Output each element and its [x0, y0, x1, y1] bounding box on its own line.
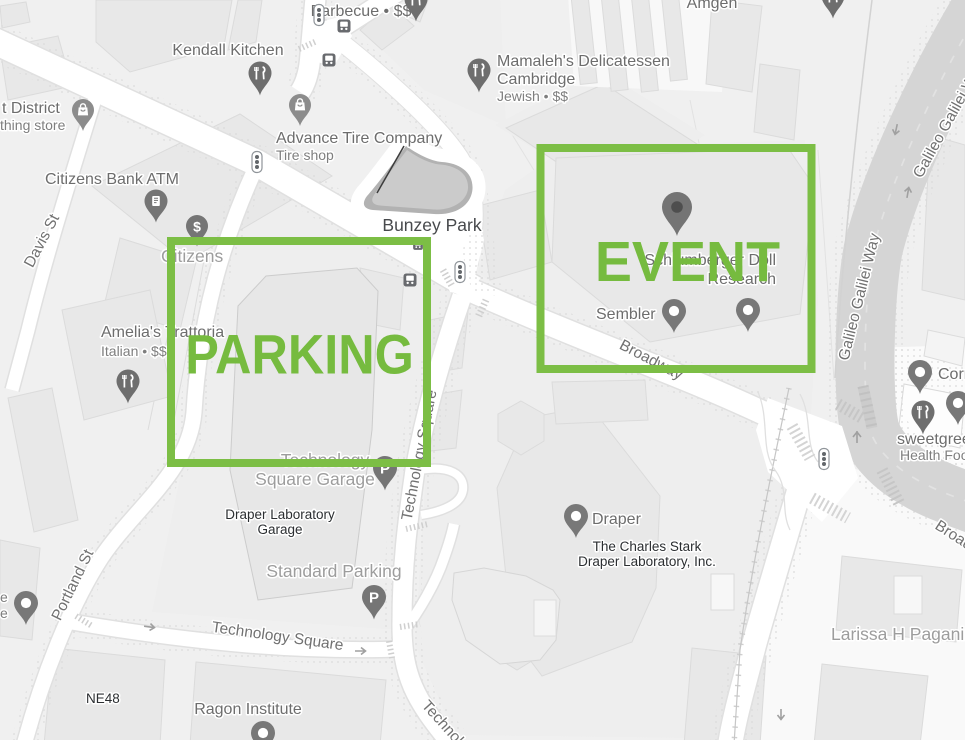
svg-text:Kendall Kitchen: Kendall Kitchen [172, 42, 283, 59]
svg-text:t District: t District [2, 100, 60, 117]
svg-text:NE48: NE48 [86, 691, 120, 706]
svg-text:The Charles Stark: The Charles Stark [593, 539, 702, 554]
svg-text:Amgen: Amgen [687, 0, 738, 12]
svg-text:Sembler: Sembler [596, 306, 656, 323]
svg-text:thing store: thing store [0, 117, 66, 133]
svg-text:EVENT: EVENT [595, 229, 780, 293]
svg-text:Tire shop: Tire shop [276, 147, 334, 163]
svg-text:Corner: Corner [938, 366, 965, 383]
svg-text:e: e [0, 589, 8, 605]
svg-text:Cambridge: Cambridge [497, 71, 575, 88]
svg-text:Barbecue • $$: Barbecue • $$ [311, 3, 412, 20]
svg-text:e: e [0, 605, 8, 621]
svg-text:Jewish • $$: Jewish • $$ [497, 88, 568, 104]
svg-text:Health Food: Health Food [900, 447, 965, 463]
svg-text:Square Garage: Square Garage [255, 469, 375, 489]
svg-text:Draper: Draper [592, 511, 642, 528]
svg-text:Ragon Institute: Ragon Institute [194, 701, 302, 718]
svg-text:Citizens Bank ATM: Citizens Bank ATM [45, 171, 179, 188]
svg-text:Italian • $$: Italian • $$ [101, 343, 167, 359]
svg-text:Garage: Garage [257, 522, 302, 537]
svg-text:sweetgreen: sweetgreen [897, 431, 965, 448]
svg-text:Standard Parking: Standard Parking [266, 561, 401, 581]
svg-text:Bunzey Park: Bunzey Park [382, 215, 481, 235]
svg-text:Advance Tire Company: Advance Tire Company [276, 130, 442, 147]
svg-text:Mamaleh's Delicatessen: Mamaleh's Delicatessen [497, 53, 670, 70]
svg-text:Larissa H Paganini: Larissa H Paganini [831, 624, 965, 644]
svg-text:Draper Laboratory: Draper Laboratory [225, 507, 335, 522]
svg-text:PARKING: PARKING [185, 324, 414, 386]
svg-text:Draper Laboratory, Inc.: Draper Laboratory, Inc. [578, 554, 716, 569]
